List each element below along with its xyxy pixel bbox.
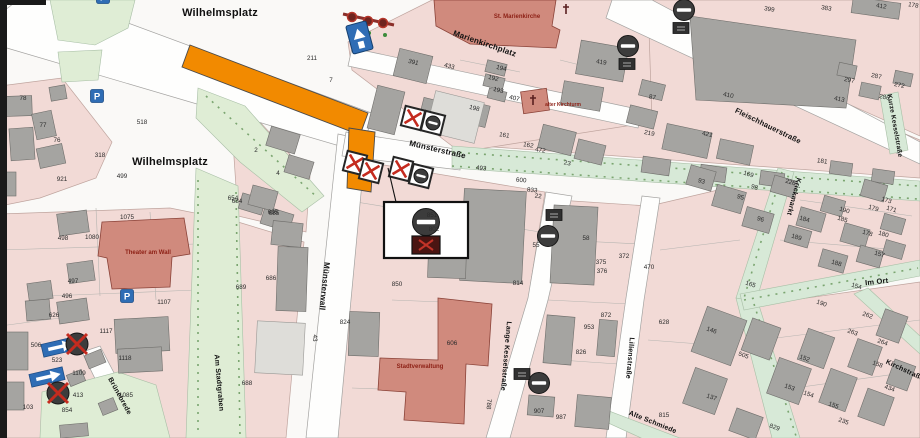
parking-icon: P [91, 90, 104, 103]
map-viewport[interactable]: PPP 787776318518211724654695921499107549… [0, 0, 920, 438]
building [543, 315, 575, 365]
parcel-number: 814 [513, 280, 524, 287]
old-church-tower-building [521, 88, 550, 113]
framed-no-entry-sign-icon [421, 111, 445, 135]
parcel-number: 1109 [72, 370, 86, 377]
parcel-number: 523 [52, 357, 63, 364]
no-entry-sign-icon [674, 0, 695, 21]
parcel-number: 850 [392, 281, 403, 288]
parcel-number: 907 [534, 408, 545, 415]
city-map: PPP 787776318518211724654695921499107549… [0, 0, 920, 438]
street-label: Wilhelmsplatz [182, 7, 258, 19]
parcel-number: 802 [429, 226, 440, 233]
building [271, 220, 303, 247]
parcel-number: 375 [596, 259, 607, 266]
supplementary-plate-icon [619, 59, 635, 70]
building [575, 395, 612, 430]
street-label: Wilhelmsplatz [132, 156, 208, 168]
parcel-number: 689 [236, 284, 247, 291]
crossed-out-sign-icon [359, 159, 383, 183]
parcel-number: 7 [329, 77, 333, 84]
parcel-number: 1075 [120, 214, 135, 221]
parcel-number: 921 [57, 176, 68, 183]
street-label: Im Ort [865, 276, 889, 287]
courtyard-building [255, 321, 306, 375]
parcel-number: 493 [476, 164, 488, 172]
building [9, 127, 35, 161]
crossed-out-circle-icon [47, 382, 69, 404]
parcel-number: 22 [534, 193, 542, 201]
parcel-number: 788 [485, 399, 493, 411]
building [49, 85, 67, 102]
parcel-number: 77 [39, 122, 47, 129]
svg-text:P: P [124, 291, 131, 302]
parcel-number: 1118 [118, 355, 132, 362]
parcel-number: 4 [276, 170, 280, 177]
parcel-number: 103 [23, 404, 34, 411]
parcel-number: 854 [62, 407, 73, 414]
building [367, 85, 405, 134]
parking-icon: P [97, 0, 110, 4]
building-label: alter Kirchturm [545, 102, 581, 108]
parcel-number: 499 [117, 173, 128, 180]
no-entry-sign-icon [618, 36, 639, 57]
parcel-number: 497 [68, 278, 79, 285]
parcel-number: 43 [311, 334, 318, 342]
parcel-number: 824 [340, 319, 351, 326]
parcel-number: 606 [447, 340, 458, 347]
parcel-number: 1117 [99, 328, 113, 335]
building [829, 161, 853, 177]
svg-text:P: P [94, 91, 101, 102]
parcel-number: 55 [532, 242, 540, 249]
parcel-number: 496 [62, 293, 73, 300]
building [27, 280, 53, 301]
parcel-number: 600 [516, 176, 528, 184]
parcel-number: 953 [584, 324, 595, 331]
parcel-number: 211 [307, 55, 318, 62]
parcel-number: 684 [232, 198, 243, 205]
parcel-number: 506 [31, 342, 42, 349]
parcel-number: 626 [49, 312, 60, 319]
parcel-number: 1107 [157, 299, 171, 306]
parcel-number: 815 [659, 412, 670, 419]
building [25, 299, 51, 321]
parcel-number: 987 [556, 414, 567, 421]
supplementary-plate-icon [514, 369, 530, 380]
no-entry-sign-icon [538, 226, 559, 247]
parcel-number: 872 [601, 312, 612, 319]
parcel-number: 628 [659, 319, 670, 326]
building [57, 298, 90, 324]
building [460, 188, 527, 283]
parcel-number: 518 [137, 119, 148, 126]
parcel-number: 470 [644, 264, 655, 271]
building [348, 311, 380, 356]
parcel-number: 685 [269, 210, 280, 217]
parcel-number: 1080 [85, 234, 100, 241]
parcel-number: 688 [242, 380, 253, 387]
building [596, 319, 617, 356]
parcel-number: 372 [619, 253, 630, 260]
parcel-number: 58 [582, 235, 590, 242]
building-label: Theater am Wall [125, 250, 171, 256]
building-label: Stadtverwaltung [397, 364, 444, 370]
supplementary-plate-icon [673, 23, 689, 34]
parcel-number: 78 [19, 95, 27, 102]
building-label: St. Marienkirche [494, 14, 541, 20]
parcel-number: 851 [427, 212, 438, 219]
parcel-number: 318 [95, 152, 106, 159]
parcel-number: 498 [58, 235, 69, 242]
crossed-out-circle-icon [66, 333, 88, 355]
supplementary-plate-icon [546, 210, 562, 221]
building [57, 210, 90, 236]
parking-icon: P [121, 290, 134, 303]
building [276, 246, 308, 311]
parcel-number: 2 [254, 147, 258, 154]
parcel-number: 413 [73, 392, 84, 399]
no-entry-sign-icon [529, 373, 550, 394]
building [59, 423, 88, 438]
svg-text:P: P [100, 0, 107, 3]
parcel-number: 376 [597, 268, 608, 275]
parcel-number: 686 [266, 275, 277, 282]
framed-no-entry-sign-icon [409, 164, 433, 188]
parcel-number: 76 [53, 137, 61, 144]
parcel-number: 826 [576, 349, 587, 356]
